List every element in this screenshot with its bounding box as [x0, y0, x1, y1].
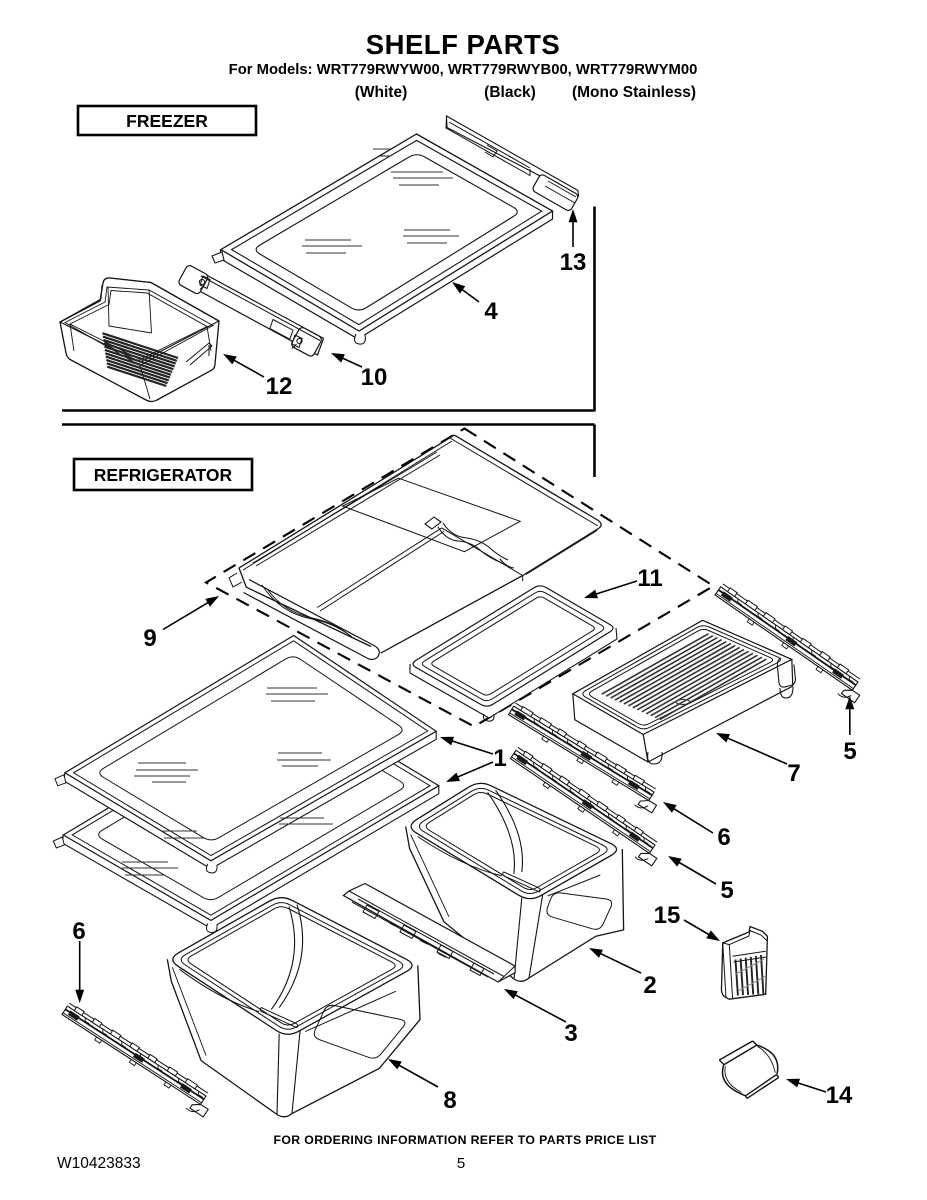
svg-text:11: 11: [637, 565, 662, 592]
svg-text:REFRIGERATOR: REFRIGERATOR: [94, 465, 233, 485]
svg-text:10: 10: [361, 364, 388, 391]
svg-text:14: 14: [826, 1082, 853, 1109]
svg-text:2: 2: [643, 972, 656, 999]
svg-text:5: 5: [843, 738, 856, 765]
svg-text:5: 5: [457, 1155, 465, 1172]
svg-text:FREEZER: FREEZER: [126, 111, 208, 131]
svg-text:(Black): (Black): [484, 84, 536, 101]
svg-text:8: 8: [443, 1087, 456, 1114]
svg-text:12: 12: [266, 373, 293, 400]
svg-text:4: 4: [484, 298, 498, 325]
svg-text:W10423833: W10423833: [57, 1155, 141, 1172]
svg-text:(White): (White): [355, 84, 408, 101]
svg-text:6: 6: [717, 824, 730, 851]
svg-text:15: 15: [654, 902, 681, 929]
svg-text:6: 6: [72, 918, 85, 945]
svg-text:7: 7: [787, 760, 800, 787]
svg-text:SHELF PARTS: SHELF PARTS: [366, 29, 560, 60]
svg-text:3: 3: [564, 1020, 577, 1047]
svg-text:For Models: WRT779RWYW00, WRT7: For Models: WRT779RWYW00, WRT779RWYB00, …: [229, 62, 698, 78]
svg-text:(Mono Stainless): (Mono Stainless): [572, 84, 696, 101]
svg-text:13: 13: [560, 249, 587, 276]
svg-text:9: 9: [143, 625, 156, 652]
svg-text:1: 1: [493, 745, 506, 772]
svg-text:FOR ORDERING INFORMATION REFER: FOR ORDERING INFORMATION REFER TO PARTS …: [274, 1133, 657, 1147]
svg-text:5: 5: [720, 877, 733, 904]
